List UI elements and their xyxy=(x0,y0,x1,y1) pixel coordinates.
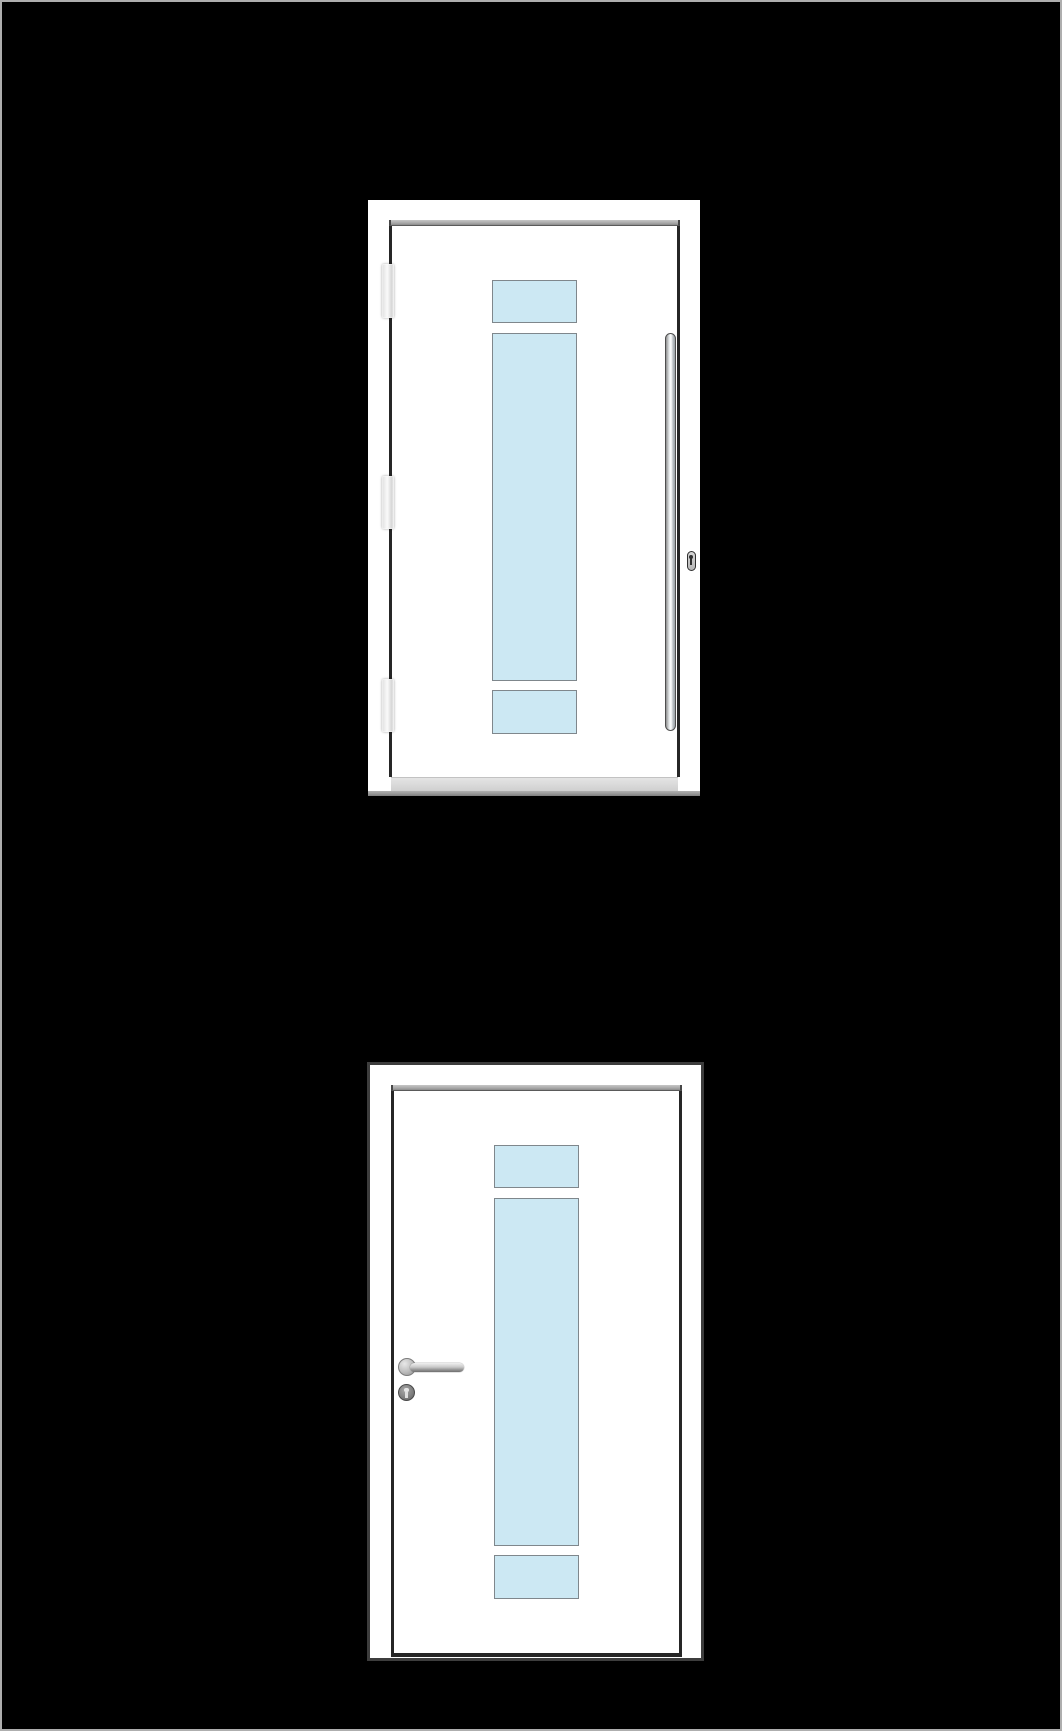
lever-handle-icon xyxy=(410,1363,464,1372)
door-frame xyxy=(370,1065,701,1658)
door-preview-entry-door[interactable] xyxy=(368,200,700,796)
hinge-bottom-icon xyxy=(382,679,394,733)
door-sill xyxy=(391,777,678,791)
door-slab xyxy=(391,1091,682,1657)
door-slab xyxy=(389,226,680,777)
canvas xyxy=(0,0,1062,1731)
pull-bar-handle xyxy=(665,333,676,731)
glass-pane-bottom xyxy=(492,690,577,734)
hinge-middle-icon xyxy=(382,476,394,530)
hinge-top-icon xyxy=(382,264,394,318)
lock-cylinder-icon xyxy=(687,551,696,571)
door-preview-interior-door[interactable] xyxy=(367,1062,704,1661)
door-threshold xyxy=(368,791,700,797)
glass-pane-top xyxy=(492,280,577,323)
glass-pane-middle xyxy=(494,1198,579,1546)
glass-pane-top xyxy=(494,1145,579,1188)
glass-pane-middle xyxy=(492,333,577,681)
keyhole-rosette-icon xyxy=(398,1384,415,1401)
glass-pane-bottom xyxy=(494,1555,579,1599)
door-frame xyxy=(368,200,700,796)
